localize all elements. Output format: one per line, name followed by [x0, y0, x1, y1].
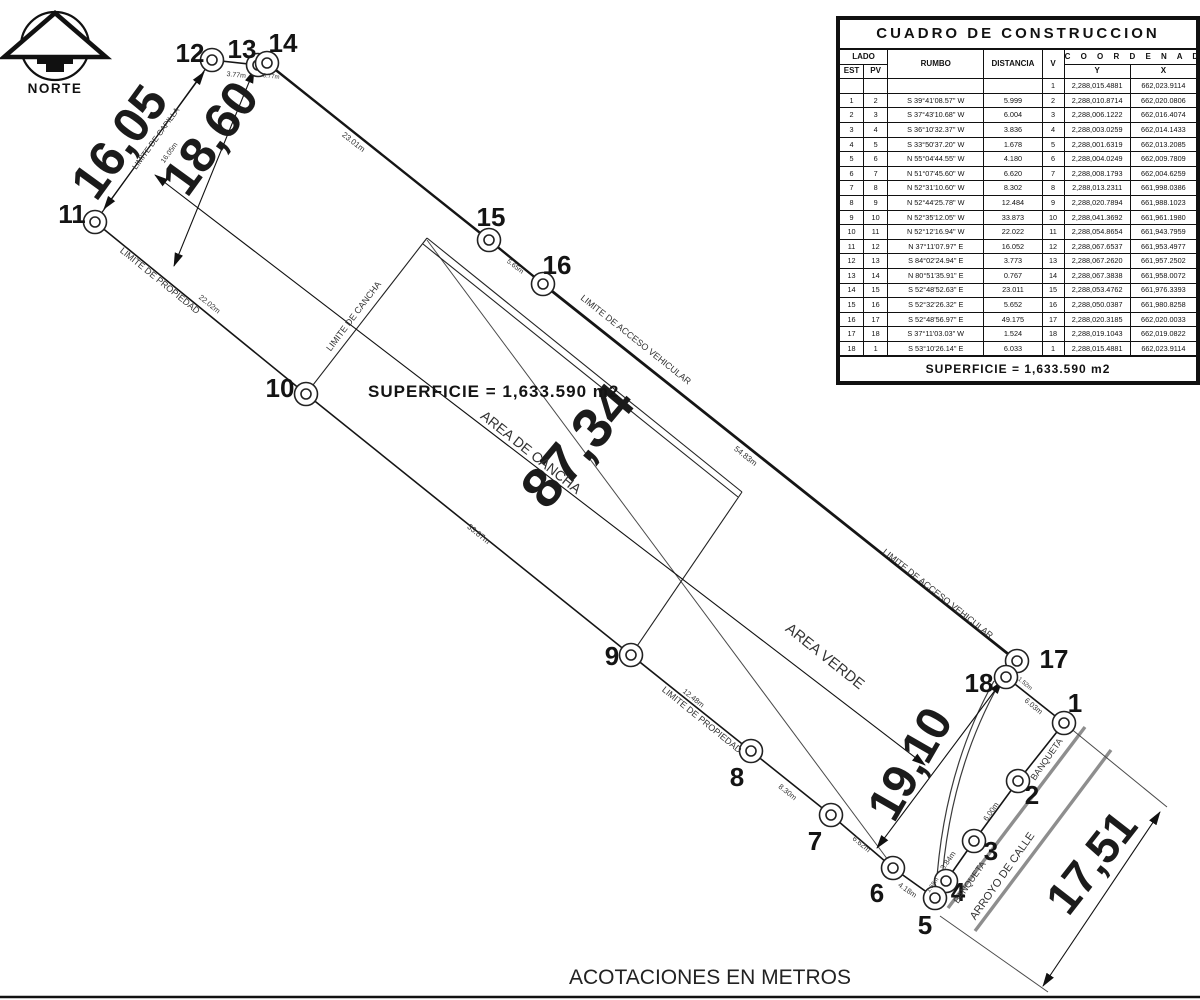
dim-19-10: 19,10	[858, 699, 964, 830]
dim-17-51: 17,51	[1035, 801, 1147, 924]
table-cell-est: 6	[840, 166, 864, 181]
table-cell-x: 661,988.1023	[1130, 195, 1196, 210]
col-header-distancia: DISTANCIA	[984, 49, 1042, 79]
vertex-number-12: 12	[176, 38, 205, 68]
table-cell-v: 9	[1042, 195, 1064, 210]
table-row: 1415S 52°48'52.63" E23.011152,288,053.47…	[840, 283, 1197, 298]
table-cell-est: 17	[840, 327, 864, 342]
table-cell-est: 9	[840, 210, 864, 225]
table-cell-y: 2,288,054.8654	[1064, 225, 1130, 240]
table-cell-x: 662,004.6259	[1130, 166, 1196, 181]
vertex-marker-inner-11	[90, 217, 100, 227]
aux-line	[427, 240, 891, 864]
table-cell-pv: 8	[864, 181, 888, 196]
table-cell-pv: 13	[864, 254, 888, 269]
table-cell-rumbo: S 37°43'10.68" W	[888, 108, 984, 123]
col-header-y: Y	[1064, 64, 1130, 79]
table-cell-rumbo: N 52°31'10.60" W	[888, 181, 984, 196]
table-row: 1617S 52°48'56.97" E49.175172,288,020.31…	[840, 312, 1197, 327]
table-cell-rumbo: S 84°02'24.94" E	[888, 254, 984, 269]
parcel-edge-14-15	[267, 63, 489, 240]
table-cell-pv: 9	[864, 195, 888, 210]
vertex-marker-inner-16	[538, 279, 548, 289]
label-23-01m: 23.01m	[340, 130, 367, 154]
table-cell-rumbo: N 55°04'44.55" W	[888, 152, 984, 167]
vertex-marker-inner-6	[888, 863, 898, 873]
table-cell-v: 14	[1042, 268, 1064, 283]
table-cell-rumbo: S 52°32'26.32" E	[888, 298, 984, 313]
table-cell-est: 15	[840, 298, 864, 313]
table-cell-rumbo: N 52°12'16.94" W	[888, 225, 984, 240]
vertex-number-1: 1	[1068, 688, 1082, 718]
table-row: 1011N 52°12'16.94" W22.022112,288,054.86…	[840, 225, 1197, 240]
table-cell-v: 10	[1042, 210, 1064, 225]
table-cell-pv: 3	[864, 108, 888, 123]
table-cell-rumbo: S 53°10'26.14" E	[888, 341, 984, 356]
label-area-verde: AREA VERDE	[782, 620, 868, 693]
table-cell-est: 11	[840, 239, 864, 254]
table-cell-distancia: 5.999	[984, 93, 1042, 108]
table-cell-pv: 10	[864, 210, 888, 225]
table-cell-est: 18	[840, 341, 864, 356]
table-cell-rumbo: S 33°50'37.20" W	[888, 137, 984, 152]
table-cell-v: 5	[1042, 137, 1064, 152]
table-cell-distancia: 5.652	[984, 298, 1042, 313]
vertex-marker-inner-9	[626, 650, 636, 660]
table-cell-distancia: 1.678	[984, 137, 1042, 152]
vertex-number-6: 6	[870, 878, 884, 908]
table-cell-x: 662,020.0806	[1130, 93, 1196, 108]
table-cell-est: 1	[840, 93, 864, 108]
vertex-marker-inner-17	[1012, 656, 1022, 666]
table-cell-v: 3	[1042, 108, 1064, 123]
vertex-marker-inner-8	[746, 746, 756, 756]
label-1-52m: 1.52m	[1016, 677, 1033, 692]
parcel-edge-8-9	[631, 655, 751, 751]
table-cell-v: 1	[1042, 341, 1064, 356]
table-cell-y: 2,288,003.0259	[1064, 122, 1130, 137]
table-cell-est: 7	[840, 181, 864, 196]
table-cell-v: 4	[1042, 122, 1064, 137]
vertex-marker-inner-18	[1001, 672, 1011, 682]
north-arrow-base-steps	[37, 57, 73, 72]
label-33-87m: 33.87m	[465, 522, 492, 546]
table-cell-y: 2,288,010.8714	[1064, 93, 1130, 108]
table-cell-est	[840, 79, 864, 94]
vertex-number-16: 16	[543, 250, 572, 280]
vertex-marker-inner-12	[207, 55, 217, 65]
table-cell-rumbo: N 52°35'12.05" W	[888, 210, 984, 225]
table-row: 1718S 37°11'03.03" W1.524182,288,019.104…	[840, 327, 1197, 342]
table-row: 1213S 84°02'24.94" E3.773132,288,067.262…	[840, 254, 1197, 269]
table-cell-x: 662,016.4074	[1130, 108, 1196, 123]
table-cell-rumbo: S 36°10'32.37" W	[888, 122, 984, 137]
table-row: 1314N 80°51'35.91" E0.767142,288,067.383…	[840, 268, 1197, 283]
vertex-number-15: 15	[477, 202, 506, 232]
table-cell-x: 661,961.1980	[1130, 210, 1196, 225]
table-cell-x: 662,023.9114	[1130, 341, 1196, 356]
north-arrow-triangle	[4, 13, 106, 57]
table-cell-distancia: 12.484	[984, 195, 1042, 210]
table-cell-pv: 15	[864, 283, 888, 298]
table-cell-distancia: 23.011	[984, 283, 1042, 298]
vertex-marker-inner-14	[262, 58, 272, 68]
table-cell-y: 2,288,006.1222	[1064, 108, 1130, 123]
table-row: 1516S 52°32'26.32" E5.652162,288,050.038…	[840, 298, 1197, 313]
table-row: 23S 37°43'10.68" W6.00432,288,006.122266…	[840, 108, 1197, 123]
table-cell-pv	[864, 79, 888, 94]
label-6-00m: 6.00m	[981, 800, 1000, 822]
acotaciones-note: ACOTACIONES EN METROS	[540, 966, 880, 990]
table-cell-y: 2,288,019.1043	[1064, 327, 1130, 342]
table-cell-v: 6	[1042, 152, 1064, 167]
table-cell-y: 2,288,001.6319	[1064, 137, 1130, 152]
north-arrow: NORTE	[4, 12, 106, 96]
table-cell-distancia: 6.620	[984, 166, 1042, 181]
table-cell-rumbo: N 52°44'25.78" W	[888, 195, 984, 210]
table-cell-distancia: 6.004	[984, 108, 1042, 123]
table-cell-est: 13	[840, 268, 864, 283]
table-cell-x: 662,020.0033	[1130, 312, 1196, 327]
vertex-number-3: 3	[984, 836, 998, 866]
table-cell-x: 661,976.3393	[1130, 283, 1196, 298]
vertex-marker-inner-2	[1013, 776, 1023, 786]
table-cell-rumbo: N 37°11'07.97" E	[888, 239, 984, 254]
vertex-marker-inner-10	[301, 389, 311, 399]
table-cell-pv: 7	[864, 166, 888, 181]
table-cell-est: 5	[840, 152, 864, 167]
aux-line	[940, 916, 1048, 992]
vertex-marker-inner-4	[941, 876, 951, 886]
table-cell-v: 13	[1042, 254, 1064, 269]
col-header-pv: PV	[864, 64, 888, 79]
table-cell-x: 662,009.7809	[1130, 152, 1196, 167]
vertex-number-11: 11	[58, 199, 86, 229]
table-cell-distancia	[984, 79, 1042, 94]
table-cell-x: 661,943.7959	[1130, 225, 1196, 240]
table-cell-rumbo: N 80°51'35.91" E	[888, 268, 984, 283]
table-cell-x: 661,958.0072	[1130, 268, 1196, 283]
table-cell-x: 662,013.2085	[1130, 137, 1196, 152]
table-row: 56N 55°04'44.55" W4.18062,288,004.024966…	[840, 152, 1197, 167]
table-cell-est: 8	[840, 195, 864, 210]
cancha-boundary-line	[306, 238, 427, 394]
table-cell-x: 662,019.0822	[1130, 327, 1196, 342]
table-cell-x: 661,998.0386	[1130, 181, 1196, 196]
vertex-number-2: 2	[1025, 780, 1039, 810]
table-cell-y: 2,288,067.6537	[1064, 239, 1130, 254]
table-cell-pv: 11	[864, 225, 888, 240]
table-cell-v: 16	[1042, 298, 1064, 313]
label-0-77m: 0.77m	[262, 73, 279, 81]
table-row: 12,288,015.4881662,023.9114	[840, 79, 1197, 94]
table-cell-v: 2	[1042, 93, 1064, 108]
table-cell-y: 2,288,067.2620	[1064, 254, 1130, 269]
table-cell-v: 8	[1042, 181, 1064, 196]
table-cell-est: 14	[840, 283, 864, 298]
label-limite-propiedad-2: LIMITE DE PROPIEDAD	[660, 684, 744, 755]
table-cell-v: 7	[1042, 166, 1064, 181]
label-54-83m: 54.83m	[732, 444, 759, 468]
table-cell-est: 16	[840, 312, 864, 327]
col-header-rumbo: RUMBO	[888, 49, 984, 79]
table-cell-y: 2,288,008.1793	[1064, 166, 1130, 181]
table-cell-pv: 17	[864, 312, 888, 327]
col-header-x: X	[1130, 64, 1196, 79]
table-cell-y: 2,288,041.3692	[1064, 210, 1130, 225]
table-cell-x: 662,014.1433	[1130, 122, 1196, 137]
table-cell-distancia: 3.773	[984, 254, 1042, 269]
table-cell-distancia: 8.302	[984, 181, 1042, 196]
parcel-edge-7-8	[751, 751, 831, 815]
plan-canvas: NORTE 12345678910111213141516171816,0518…	[0, 0, 1200, 1000]
label-6-03m: 6.03m	[1023, 696, 1045, 716]
table-cell-rumbo: S 52°48'52.63" E	[888, 283, 984, 298]
table-row: 78N 52°31'10.60" W8.30282,288,013.231166…	[840, 181, 1197, 196]
vertex-marker-inner-3	[969, 836, 979, 846]
table-cell-distancia: 6.033	[984, 341, 1042, 356]
table-cell-y: 2,288,067.3838	[1064, 268, 1130, 283]
table-cell-distancia: 4.180	[984, 152, 1042, 167]
north-label: NORTE	[28, 81, 83, 96]
label-limite-propiedad-1: LIMITE DE PROPIEDAD	[118, 245, 202, 316]
table-row: 89N 52°44'25.78" W12.48492,288,020.78946…	[840, 195, 1197, 210]
vertex-number-14: 14	[269, 28, 298, 58]
table-cell-distancia: 49.175	[984, 312, 1042, 327]
table-cell-v: 1	[1042, 79, 1064, 94]
table-cell-distancia: 1.524	[984, 327, 1042, 342]
vertex-number-13: 13	[228, 34, 257, 64]
table-cell-rumbo	[888, 79, 984, 94]
col-header-est: EST	[840, 64, 864, 79]
table-cell-v: 18	[1042, 327, 1064, 342]
table-cell-distancia: 3.836	[984, 122, 1042, 137]
vertex-number-17: 17	[1040, 644, 1069, 674]
table-cell-distancia: 33.873	[984, 210, 1042, 225]
table-cell-x: 661,953.4977	[1130, 239, 1196, 254]
table-body: 12,288,015.4881662,023.911412S 39°41'08.…	[840, 79, 1197, 357]
table-row: 12S 39°41'08.57" W5.99922,288,010.871466…	[840, 93, 1197, 108]
vertex-number-18: 18	[965, 668, 994, 698]
label-22-02m: 22.02m	[197, 293, 222, 316]
col-header-lado: LADO	[840, 49, 888, 64]
table-cell-pv: 2	[864, 93, 888, 108]
table-superficie: SUPERFICIE = 1,633.590 m2	[840, 356, 1197, 382]
table-cell-v: 17	[1042, 312, 1064, 327]
table-cell-rumbo: N 51°07'45.60" W	[888, 166, 984, 181]
vertex-marker-inner-5	[930, 893, 940, 903]
table-cell-pv: 6	[864, 152, 888, 167]
table-title: CUADRO DE CONSTRUCCION	[840, 20, 1197, 50]
vertex-number-8: 8	[730, 762, 744, 792]
table-cell-distancia: 16.052	[984, 239, 1042, 254]
table-cell-y: 2,288,050.0387	[1064, 298, 1130, 313]
table-cell-distancia: 0.767	[984, 268, 1042, 283]
table-row: 181S 53°10'26.14" E6.03312,288,015.48816…	[840, 341, 1197, 356]
table-cell-y: 2,288,004.0249	[1064, 152, 1130, 167]
vertex-number-10: 10	[266, 373, 295, 403]
table-row: 910N 52°35'12.05" W33.873102,288,041.369…	[840, 210, 1197, 225]
table-row: 67N 51°07'45.60" W6.62072,288,008.179366…	[840, 166, 1197, 181]
vertex-number-7: 7	[808, 826, 822, 856]
table-row: 34S 36°10'32.37" W3.83642,288,003.025966…	[840, 122, 1197, 137]
table-cell-rumbo: S 52°48'56.97" E	[888, 312, 984, 327]
table-cell-x: 661,957.2502	[1130, 254, 1196, 269]
table-cell-v: 11	[1042, 225, 1064, 240]
construction-table: CUADRO DE CONSTRUCCION LADO RUMBO DISTAN…	[836, 16, 1200, 385]
table-cell-y: 2,288,015.4881	[1064, 79, 1130, 94]
vertex-marker-inner-1	[1059, 718, 1069, 728]
table-cell-v: 12	[1042, 239, 1064, 254]
table-cell-distancia: 22.022	[984, 225, 1042, 240]
table-cell-v: 15	[1042, 283, 1064, 298]
table-cell-y: 2,288,020.3185	[1064, 312, 1130, 327]
table-cell-pv: 1	[864, 341, 888, 356]
table-cell-pv: 12	[864, 239, 888, 254]
table-cell-est: 12	[840, 254, 864, 269]
table-cell-x: 661,980.8258	[1130, 298, 1196, 313]
dim-18-60: 18,60	[151, 71, 270, 205]
table-cell-y: 2,288,053.4762	[1064, 283, 1130, 298]
table-cell-est: 4	[840, 137, 864, 152]
table-cell-est: 3	[840, 122, 864, 137]
table-cell-pv: 4	[864, 122, 888, 137]
table-cell-y: 2,288,015.4881	[1064, 341, 1130, 356]
label-limite-de-cancha: LIMITE DE CANCHA	[324, 279, 383, 353]
label-6-62m: 6.62m	[851, 834, 873, 854]
table-cell-rumbo: S 37°11'03.03" W	[888, 327, 984, 342]
table-cell-y: 2,288,020.7894	[1064, 195, 1130, 210]
table-cell-est: 2	[840, 108, 864, 123]
col-header-v: V	[1042, 49, 1064, 79]
col-header-coordenadas: C O O R D E N A D A S	[1064, 49, 1196, 64]
vertex-marker-inner-15	[484, 235, 494, 245]
table-cell-pv: 18	[864, 327, 888, 342]
table-cell-y: 2,288,013.2311	[1064, 181, 1130, 196]
superficie-label: SUPERFICIE = 1,633.590 m2	[368, 382, 619, 402]
label-limite-acceso-vehicular-2: LIMITE DE ACCESO VEHICULAR	[881, 547, 996, 641]
table-cell-x: 662,023.9114	[1130, 79, 1196, 94]
table-cell-pv: 5	[864, 137, 888, 152]
table-cell-pv: 14	[864, 268, 888, 283]
table-cell-est: 10	[840, 225, 864, 240]
vertex-number-9: 9	[605, 641, 619, 671]
table-row: 45S 33°50'37.20" W1.67852,288,001.631966…	[840, 137, 1197, 152]
table-cell-pv: 16	[864, 298, 888, 313]
cancha-boundary-line	[631, 492, 742, 655]
table-cell-rumbo: S 39°41'08.57" W	[888, 93, 984, 108]
vertex-number-5: 5	[918, 910, 932, 940]
table-row: 1112N 37°11'07.97" E16.052122,288,067.65…	[840, 239, 1197, 254]
vertex-marker-inner-7	[826, 810, 836, 820]
label-8-30m: 8.30m	[777, 782, 799, 802]
